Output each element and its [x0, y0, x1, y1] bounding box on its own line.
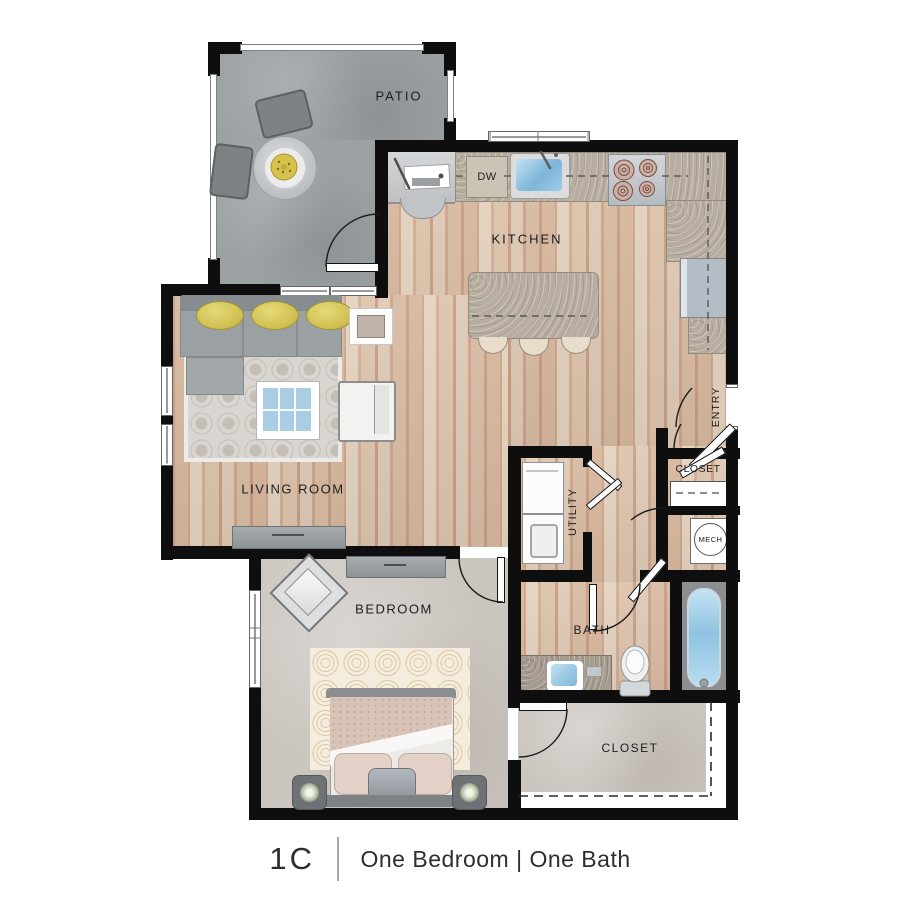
patio-plate [264, 147, 306, 189]
mech-circle: MECH [694, 523, 727, 556]
laptop [403, 164, 450, 190]
floor-plan: DW MECH [0, 0, 900, 900]
window [161, 424, 173, 466]
wall [249, 686, 261, 814]
washer-lid-line [526, 470, 558, 472]
kitchen-counter [688, 316, 728, 354]
patio-wall-corner [444, 118, 456, 152]
bedroom-door [497, 557, 505, 603]
wall [726, 428, 738, 820]
wall [508, 570, 592, 582]
tv-console-handle [272, 534, 304, 536]
bathtub [687, 588, 721, 688]
kitchen-sink-basin [516, 159, 562, 191]
entry-label: ENTRY [710, 387, 722, 427]
sofa-pillow [251, 301, 299, 330]
bed-headboard [322, 795, 460, 807]
patio-railing [447, 70, 454, 122]
dishwasher-label: DW [477, 171, 496, 183]
bath-label: BATH [573, 623, 610, 637]
stove [608, 154, 666, 206]
walkin-closet-door [519, 702, 567, 711]
wall [161, 284, 173, 368]
walkin-closet-label: CLOSET [601, 741, 658, 755]
window [161, 366, 173, 416]
nightstand-lamp [460, 783, 479, 802]
unit-description: One Bedroom | One Bath [361, 846, 631, 873]
patio-wall-corner [208, 42, 220, 76]
wall [656, 506, 740, 515]
kitchen-island [468, 272, 599, 339]
sofa-pillow [306, 301, 354, 330]
vanity-sink-basin [551, 664, 577, 686]
wall [508, 760, 521, 812]
caption-divider [337, 837, 339, 881]
wall [249, 808, 738, 820]
dresser-handle [384, 564, 406, 566]
caption: 1C One Bedroom | One Bath [0, 836, 900, 882]
bedroom-label: BEDROOM [355, 602, 433, 617]
patio-railing [240, 44, 424, 51]
sofa-chaise [186, 357, 244, 395]
kitchen-counter [666, 200, 728, 262]
entry-closet-label: CLOSET [675, 463, 720, 475]
patio-wall-corner [208, 258, 220, 296]
patio-chair [209, 143, 254, 200]
utility-label: UTILITY [567, 488, 579, 536]
coffee-table-glass [263, 388, 311, 431]
living-room-label: LIVING ROOM [241, 482, 344, 497]
window [249, 590, 261, 688]
wall [670, 582, 682, 702]
laptop-keyboard [412, 178, 440, 186]
soap-dish [586, 666, 602, 677]
entry-door-jamb [726, 384, 738, 388]
nightstand-lamp [300, 783, 319, 802]
dryer-door [530, 524, 558, 558]
wall [726, 140, 738, 388]
kitchen-label: KITCHEN [491, 232, 562, 247]
patio-door [326, 263, 379, 272]
refrigerator [680, 258, 728, 318]
dresser [346, 556, 446, 578]
closet-shelf [670, 481, 728, 508]
dishwasher: DW [466, 156, 508, 198]
wall [583, 532, 592, 574]
tv-console [232, 526, 346, 549]
patio-label: PATIO [375, 89, 422, 104]
wall [508, 446, 592, 458]
side-table-top [357, 315, 385, 338]
armchair-back [374, 385, 389, 434]
wall [375, 140, 388, 298]
mech-label: MECH [699, 535, 723, 544]
window [488, 131, 590, 142]
unit-number: 1C [269, 841, 315, 877]
sofa-pillow [196, 301, 244, 330]
